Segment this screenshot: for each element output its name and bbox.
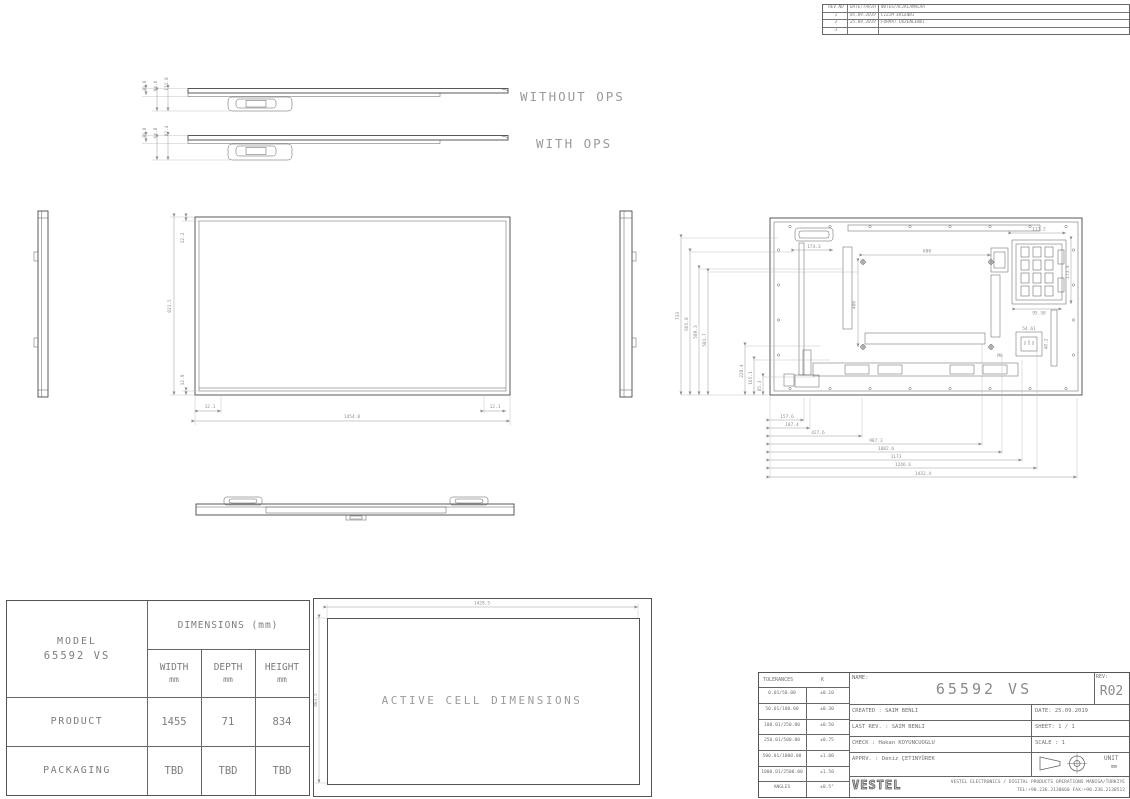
rev-no: 3 [823, 28, 848, 35]
col-height: HEIGHT [265, 662, 299, 673]
dim-label: 228.4 [739, 364, 745, 378]
contact-line: TEL:+90.236.2130660 FAX:+90.236.2130512 [907, 788, 1125, 793]
drawing-name: 65592 VS [889, 680, 1079, 698]
rev-no: 1 [823, 13, 848, 20]
dim-label: 427.6 [811, 430, 825, 436]
dim-label: 12.9 [180, 374, 186, 385]
dim-label: 12.1 [205, 404, 216, 410]
dim-label: 85.3 [757, 380, 763, 391]
dim-label: 165.1 [748, 371, 754, 385]
spec-table: MODEL 65592 VS DIMENSIONS (mm) WIDTH mm … [6, 600, 310, 796]
dim-label: 64.8 [153, 127, 159, 138]
dim-label: 1082.6 [878, 446, 895, 452]
tol-range: 1000.01/2500.00 [759, 770, 805, 775]
date-value: DATE: 25.09.2019 [1035, 708, 1088, 714]
rear-view: 600 400 M8 174.3 117.2 173.8 95.58 54.61… [675, 218, 1082, 479]
rev-note [879, 28, 1129, 35]
company-line: VESTEL ELECTRONICS / DIGITAL PRODUCTS OP… [907, 780, 1125, 785]
col-unit: mm [223, 675, 233, 684]
checked-by: CHECK : Hakan KOYUNCUOGLU [852, 740, 935, 746]
dimensions-header: DIMENSIONS (mm) [147, 601, 309, 649]
vesa-holes [860, 259, 994, 350]
col-unit: mm [169, 675, 179, 684]
dim-label: 48.2 [1044, 338, 1050, 349]
revision-header-row: REV.NO DATE/TARIH NOTES/ACIKLAMALAR [823, 5, 1129, 12]
tol-value: ±1.00 [806, 754, 848, 759]
rev-date [848, 28, 879, 35]
dim-label: 581.7 [702, 333, 708, 347]
revision-row: 1 05.09.2019 CIZIM EKLENDI [823, 12, 1129, 20]
dim-label: 111.8 [164, 77, 170, 91]
dim-label: 987.3 [869, 438, 883, 444]
tol-range: 0.01/50.00 [759, 691, 805, 696]
dim-label: 94.6 [153, 80, 159, 91]
front-view: 831.5 12.2 12.9 1454.8 12.1 12.1 [167, 217, 510, 425]
packaging-depth: TBD [201, 746, 255, 795]
dim-label: 54.61 [1022, 326, 1036, 332]
tol-range: 50.01/100.00 [759, 707, 805, 712]
rev-date: 25.09.2019 [848, 20, 879, 27]
revision-col-no: REV.NO [823, 5, 848, 12]
revision-col-note: NOTES/ACIKLAMALAR [879, 5, 1129, 12]
packaging-width: TBD [147, 746, 201, 795]
rev-note: CIZIM EKLENDI [879, 13, 1129, 20]
tol-range: ANGLES [759, 785, 805, 790]
dim-label: 1173 [891, 454, 902, 460]
model-value: 65592 VS [44, 650, 111, 662]
dim-label: 1432.4 [915, 471, 932, 477]
dim-label: 12.1 [490, 404, 501, 410]
rev-value: R02 [1094, 684, 1129, 699]
product-width: 1455 [147, 697, 201, 746]
unit-label: UNIT [1104, 755, 1118, 762]
vestel-logo: VESTEL [852, 778, 901, 792]
tol-value: ±0.10 [806, 691, 848, 696]
tol-range: 250.01/500.00 [759, 738, 805, 743]
product-depth: 71 [201, 697, 255, 746]
tol-range: 100.01/250.00 [759, 723, 805, 728]
dim-label: 600 [923, 249, 931, 255]
dim-label: 1454.8 [344, 414, 361, 420]
dim-label: 30.8 [142, 80, 148, 91]
product-height: 834 [255, 697, 309, 746]
tol-value: ±0.50 [806, 723, 848, 728]
rev-label: REV: [1096, 674, 1108, 680]
sheet-value: SHEET: 1 / 1 [1035, 724, 1075, 730]
dim-label: 400 [852, 301, 858, 309]
dim-label: 187.4 [785, 422, 799, 428]
dim-label: 30.8 [142, 127, 148, 138]
dim-label: 117.2 [1032, 227, 1046, 233]
col-unit: mm [277, 675, 287, 684]
rev-no: 2 [823, 20, 848, 27]
tol-value: ±0.5° [806, 785, 848, 790]
dim-label: 82.4 [164, 125, 170, 136]
side-view-with-ops: 30.8 64.8 82.4 [142, 125, 508, 160]
packaging-row-label: PACKAGING [7, 746, 147, 795]
dim-label: 12.2 [180, 232, 186, 243]
revision-row: 3 [823, 27, 1129, 35]
dim-label: 173.8 [1065, 265, 1071, 279]
title-block: TOLERANCES K 0.01/50.00 ±0.10 50.01/100.… [758, 672, 1130, 798]
last-rev-by: LAST REV. : SAIM BENLI [852, 724, 925, 730]
revision-col-date: DATE/TARIH [848, 5, 879, 12]
name-label: NAME: [852, 675, 869, 681]
tol-value: ±1.50 [806, 770, 848, 775]
rev-date: 05.09.2019 [848, 13, 879, 20]
revision-table: REV.NO DATE/TARIH NOTES/ACIKLAMALAR 1 05… [822, 4, 1130, 35]
col-width: WIDTH [160, 662, 189, 673]
left-profile-view [34, 211, 48, 397]
with-ops-label: WITH OPS [536, 136, 612, 151]
tol-range: 500.01/1000.00 [759, 754, 805, 759]
dim-label: 95.58 [1032, 311, 1046, 317]
tol-value: ±0.30 [806, 707, 848, 712]
dim-label: 665.8 [684, 317, 690, 331]
model-label: MODEL [57, 636, 97, 647]
approved-by: APPRV. : Deniz ÇETINYÜREK [852, 756, 935, 762]
created-by: CREATED : SAIM BENLI [852, 708, 918, 714]
packaging-height: TBD [255, 746, 309, 795]
side-view-without-ops: 30.8 94.6 111.8 [142, 77, 508, 111]
engineering-drawing-canvas: 30.8 94.6 111.8 30.8 64.8 82.4 [0, 0, 1130, 799]
dim-label: 1246.6 [895, 462, 912, 468]
tolerances-title: TOLERANCES [763, 677, 793, 683]
revision-row: 2 25.09.2019 FORMAT DUZENLENDI [823, 19, 1129, 27]
rev-note: FORMAT DUZENLENDI [879, 20, 1129, 27]
tolerances-k: K [821, 677, 824, 683]
dim-label: 157.6 [780, 414, 794, 420]
product-row-label: PRODUCT [7, 697, 147, 746]
ops-ports [1021, 247, 1064, 296]
dim-label: 831.5 [167, 299, 173, 313]
active-cell-label: ACTIVE CELL DIMENSIONS [352, 694, 612, 707]
dim-label: 589.3 [693, 325, 699, 339]
dim-label: 174.3 [807, 244, 821, 250]
right-profile-view [620, 211, 636, 397]
dim-label: 733 [675, 312, 681, 320]
bottom-view [196, 497, 514, 520]
unit-value: mm [1111, 764, 1117, 770]
col-depth: DEPTH [214, 662, 243, 673]
scale-value: SCALE : 1 [1035, 740, 1065, 746]
without-ops-label: WITHOUT OPS [520, 89, 625, 104]
tol-value: ±0.75 [806, 738, 848, 743]
